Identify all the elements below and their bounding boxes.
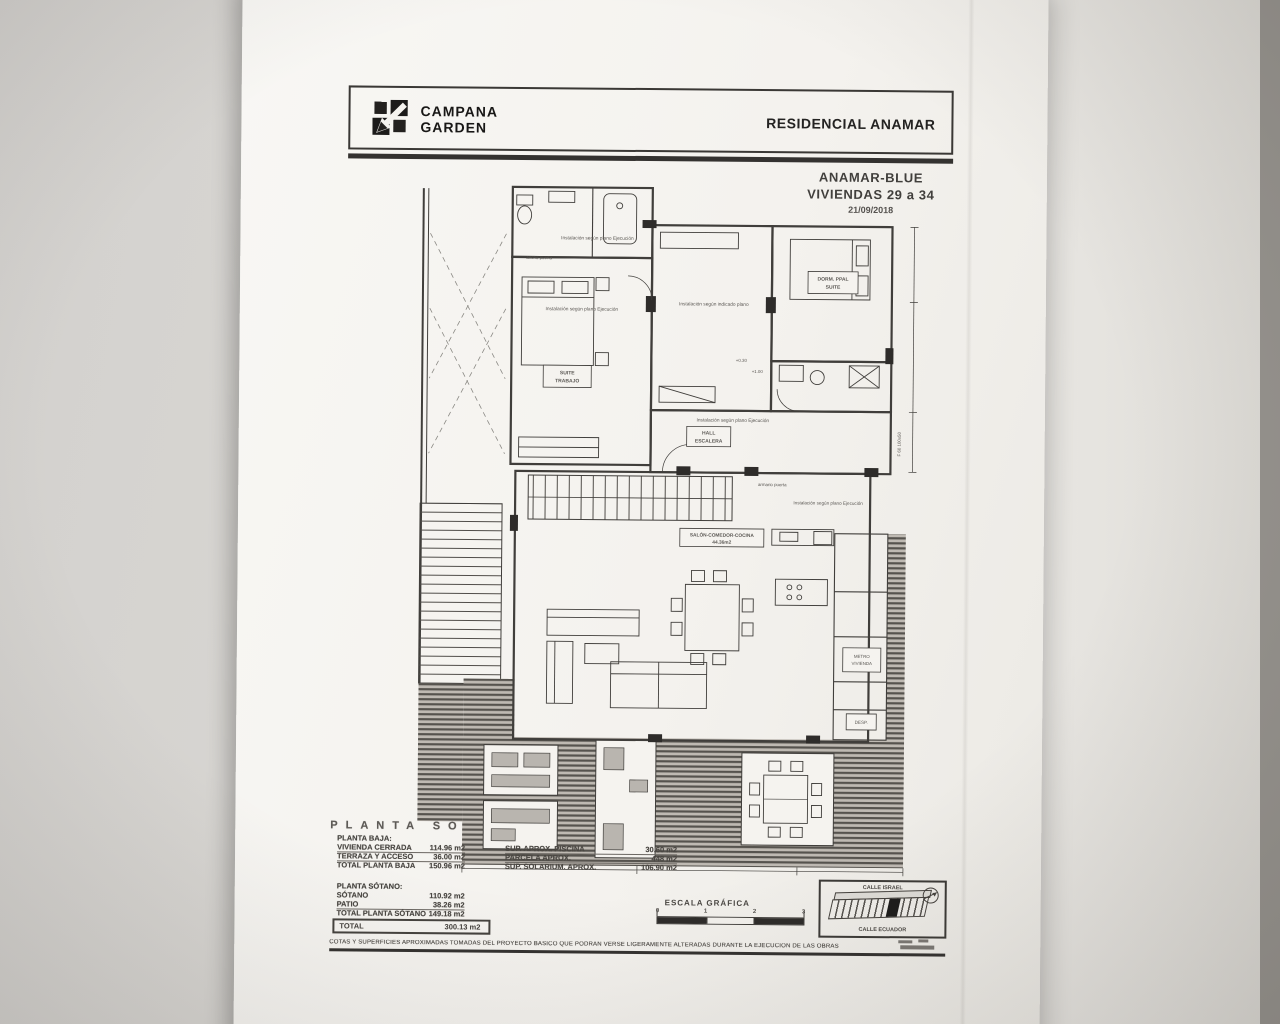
scale-end-tick — [804, 910, 805, 917]
area-value: 30.60 m2 — [645, 845, 677, 854]
title-block-header: CAMPANA GARDEN RESIDENCIAL ANAMAR — [348, 85, 954, 154]
scale-label: ESCALA GRÁFICA — [665, 898, 750, 908]
street-name-bottom: CALLE ECUADOR — [820, 927, 944, 934]
area-value: 114.96 m2 — [430, 843, 466, 852]
area-label: SUP. SOLARIUM. APROX. — [505, 862, 596, 872]
floor-plan-svg: Instalación según plano Ejecución ancho … — [397, 178, 943, 878]
background-surface — [1018, 0, 1264, 1024]
area-value: 106.90 m2 — [641, 863, 677, 872]
table-edge-strip — [1260, 0, 1280, 1024]
project-title: RESIDENCIAL ANAMAR — [766, 115, 935, 132]
area-value: 36.00 m2 — [433, 852, 465, 861]
interior-stairs — [528, 475, 732, 521]
scale-tick-1: 1 — [701, 909, 711, 915]
area-row: TOTAL PLANTA SÓTANO 149.18 m2 — [336, 908, 464, 918]
location-key: CALLE ISRAEL CALLE ECUADOR — [818, 880, 947, 939]
room-label-desp: DESP. — [855, 720, 868, 725]
north-arrow-icon — [922, 886, 940, 904]
room-label-metro-1: METRO — [854, 654, 870, 659]
area-row: TOTAL PLANTA BAJA 150.96 m2 — [337, 860, 465, 870]
install-note-4: Instalación según plano Ejecución — [697, 417, 770, 424]
area-value: 149.18 m2 — [429, 909, 465, 918]
highlighted-unit — [886, 899, 901, 917]
photo-of-plan-sheet: CAMPANA GARDEN RESIDENCIAL ANAMAR ANAMAR… — [0, 0, 1280, 1024]
total-row: TOTAL 300.13 m2 — [332, 918, 490, 934]
brand-logo: CAMPANA GARDEN — [372, 100, 498, 139]
walls — [508, 187, 893, 742]
brand-line1: CAMPANA — [420, 103, 498, 120]
furniture — [512, 191, 880, 710]
room-label-hall-2: ESCALERA — [695, 438, 723, 444]
install-note-5: Instalación según plano Ejecución — [793, 500, 863, 506]
room-label-suite-1: SUITE — [560, 370, 575, 376]
total-value: 300.13 m2 — [445, 922, 481, 931]
install-note-2: Instalación según plano Ejecución — [546, 306, 619, 313]
printer-stamp — [898, 939, 940, 951]
area-label: TOTAL PLANTA BAJA — [337, 860, 415, 870]
install-note-3: Instalación según indicado plano — [679, 301, 749, 308]
scale-end-tick — [657, 909, 658, 916]
level-mark-100: +1.00 — [752, 369, 764, 374]
graphic-scale-bar — [656, 916, 804, 925]
install-note-1: Instalación según plano Ejecución — [561, 235, 634, 242]
level-mark-030: +0.30 — [736, 358, 748, 363]
area-value: 110.92 m2 — [429, 891, 465, 900]
fab-label: F 60 100x50 — [897, 431, 902, 456]
area-value: 150.96 m2 — [429, 861, 465, 870]
scale-tick-2: 2 — [750, 909, 760, 915]
room-label-salon-2: 44.36m2 — [712, 540, 731, 546]
plan-sheet: CAMPANA GARDEN RESIDENCIAL ANAMAR ANAMAR… — [233, 0, 1048, 1024]
area-label: SÓTANO — [337, 890, 369, 899]
exterior-stairs — [419, 503, 503, 684]
door-width-note: ancho puerta — [526, 255, 552, 260]
campana-garden-logo-icon — [372, 100, 410, 138]
area-row: SUP. SOLARIUM. APROX. 106.90 m2 — [505, 862, 677, 873]
units-row — [828, 897, 929, 919]
brand-line2: GARDEN — [420, 119, 498, 136]
room-label-metro-2: VIVIENDA — [851, 661, 872, 666]
wardrobe-note: armario puerta — [758, 482, 787, 487]
header-rule — [348, 153, 953, 163]
area-value: 38.26 m2 — [433, 900, 465, 909]
total-label: TOTAL — [339, 921, 363, 930]
room-label-suite-2: TRABAJO — [555, 378, 579, 384]
room-label-hall-1: HALL — [702, 431, 715, 437]
room-label-dorm-2: SUITE — [826, 285, 841, 291]
planta-baja-heading: PLANTA BAJA: — [337, 833, 392, 842]
area-label: PATIO — [337, 899, 359, 908]
paper-crease — [959, 0, 974, 1024]
area-value: 448 m2 — [652, 854, 678, 863]
access-ramp-hatch — [429, 233, 507, 454]
area-label: TOTAL PLANTA SÓTANO — [336, 908, 426, 918]
room-label-dorm-1: DORM. PPAL — [818, 277, 849, 283]
